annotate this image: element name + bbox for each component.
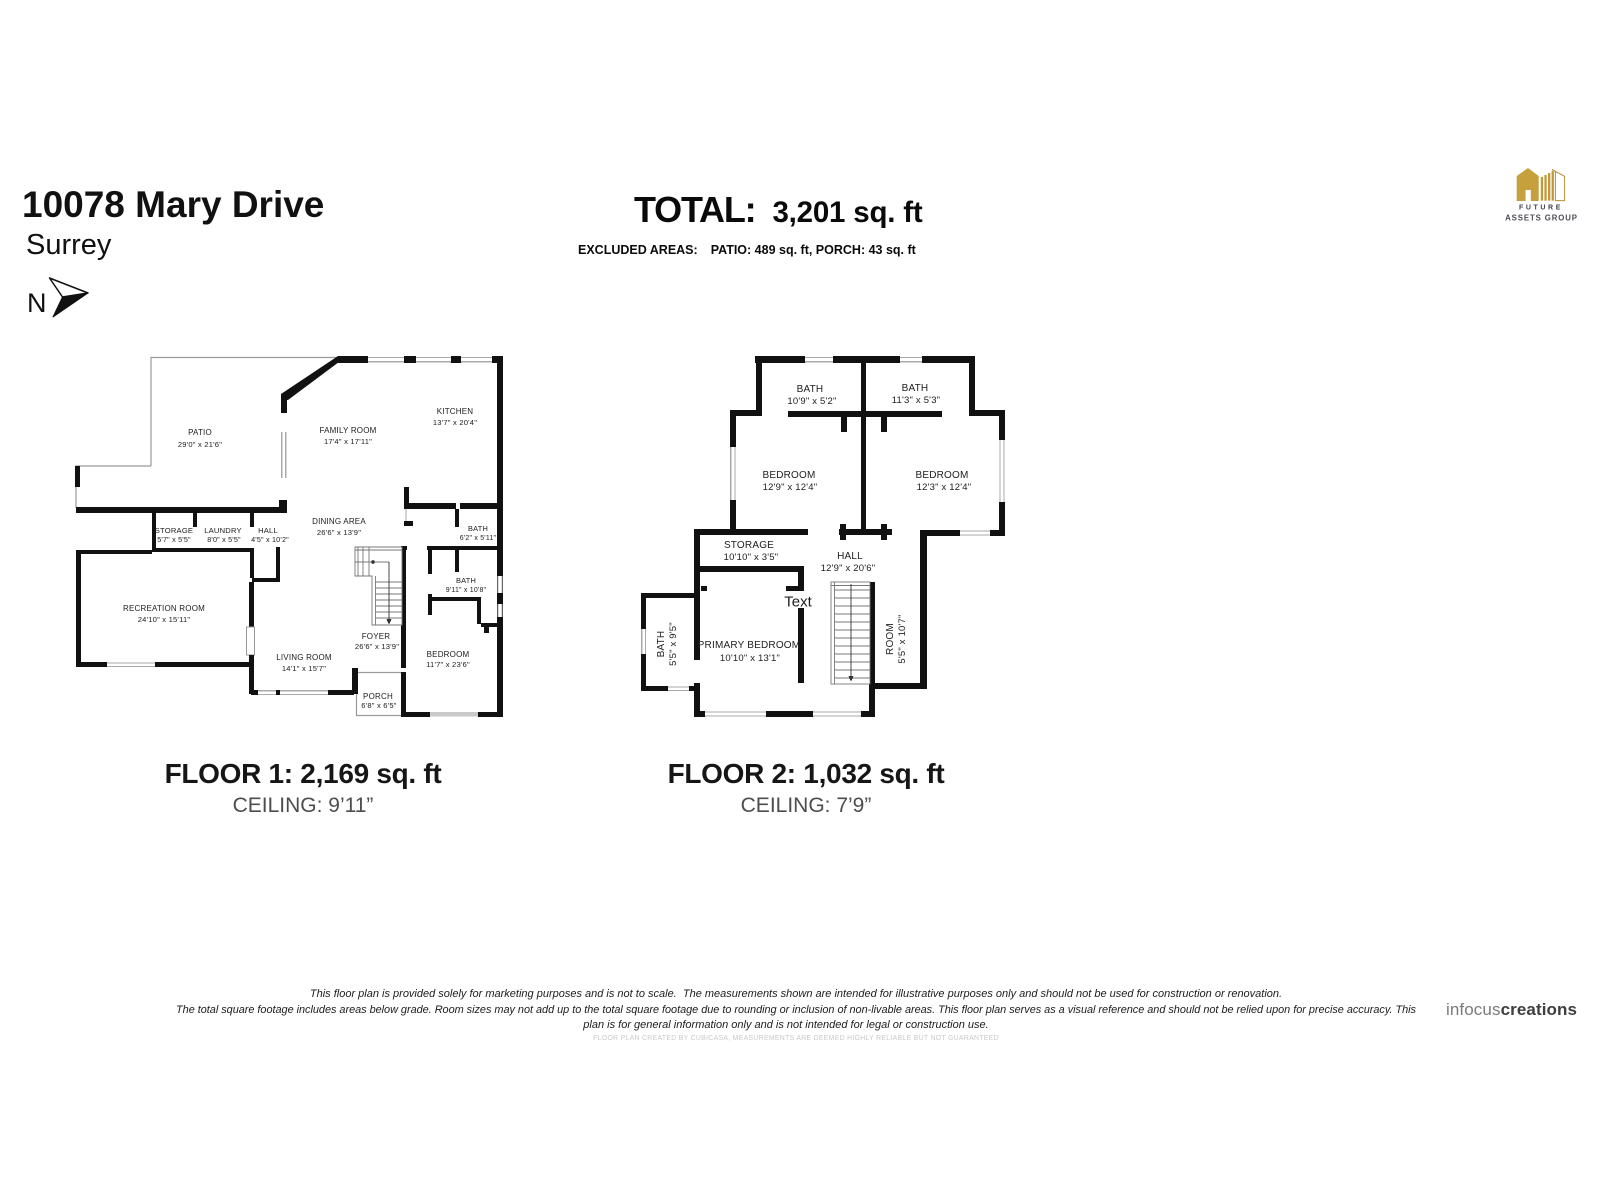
svg-text:FOYER: FOYER: [362, 632, 391, 641]
svg-text:12'9" x 20'6": 12'9" x 20'6": [821, 563, 876, 574]
svg-text:STORAGE: STORAGE: [155, 526, 193, 535]
svg-text:LIVING ROOM: LIVING ROOM: [276, 653, 332, 662]
svg-text:HALL: HALL: [258, 526, 278, 535]
svg-text:PRIMARY BEDROOM: PRIMARY BEDROOM: [698, 640, 801, 651]
svg-text:11'3" x 5'3": 11'3" x 5'3": [892, 395, 941, 406]
svg-text:BEDROOM: BEDROOM: [762, 470, 815, 481]
svg-text:DINING AREA: DINING AREA: [312, 517, 366, 526]
svg-text:26'6" x 13'9": 26'6" x 13'9": [355, 642, 399, 651]
svg-text:13'7" x 20'4": 13'7" x 20'4": [433, 418, 477, 427]
svg-text:Text: Text: [784, 594, 812, 611]
svg-text:PORCH: PORCH: [363, 692, 393, 701]
svg-text:LAUNDRY: LAUNDRY: [204, 526, 242, 535]
svg-text:5'5" x 9'5": 5'5" x 9'5": [668, 622, 679, 666]
svg-text:ASSETS GROUP: ASSETS GROUP: [1505, 214, 1578, 223]
svg-text:12'9" x 12'4": 12'9" x 12'4": [763, 482, 818, 493]
svg-text:FUTURE: FUTURE: [1519, 205, 1563, 212]
svg-text:10'10" x 3'5": 10'10" x 3'5": [724, 552, 779, 563]
svg-text:BATH: BATH: [902, 383, 929, 394]
svg-text:4'5" x 10'2": 4'5" x 10'2": [251, 535, 289, 544]
svg-text:14'1" x 15'7": 14'1" x 15'7": [282, 664, 326, 673]
svg-text:BEDROOM: BEDROOM: [427, 650, 470, 659]
svg-text:RECREATION ROOM: RECREATION ROOM: [123, 604, 205, 613]
svg-text:10'10" x 13'1": 10'10" x 13'1": [720, 653, 780, 664]
svg-text:12'3" x 12'4": 12'3" x 12'4": [917, 482, 972, 493]
svg-text:5'5" x 10'7": 5'5" x 10'7": [897, 614, 908, 663]
svg-text:KITCHEN: KITCHEN: [437, 407, 474, 416]
svg-text:9'11" x 10'8": 9'11" x 10'8": [446, 587, 487, 594]
svg-text:HALL: HALL: [837, 551, 863, 562]
svg-text:17'4" x 17'11": 17'4" x 17'11": [324, 437, 372, 446]
svg-text:BATH: BATH: [656, 631, 667, 658]
svg-text:11'7" x 23'6": 11'7" x 23'6": [426, 660, 470, 669]
svg-text:N: N: [27, 288, 47, 318]
svg-text:PATIO: PATIO: [188, 428, 212, 437]
svg-text:STORAGE: STORAGE: [724, 540, 774, 551]
svg-text:5'7" x 5'5": 5'7" x 5'5": [157, 535, 191, 544]
svg-text:BATH: BATH: [797, 384, 824, 395]
svg-text:6'2" x 5'11": 6'2" x 5'11": [460, 535, 497, 542]
svg-text:BATH: BATH: [456, 576, 476, 585]
svg-text:24'10" x 15'11": 24'10" x 15'11": [138, 615, 191, 624]
svg-text:BATH: BATH: [468, 524, 488, 533]
svg-text:6'8" x 6'5": 6'8" x 6'5": [361, 701, 397, 710]
svg-text:29'0" x 21'6": 29'0" x 21'6": [178, 440, 222, 449]
svg-text:10'9" x 5'2": 10'9" x 5'2": [787, 396, 836, 407]
svg-text:ROOM: ROOM: [885, 623, 896, 655]
svg-text:26'6" x 13'9": 26'6" x 13'9": [317, 528, 361, 537]
svg-text:FAMILY ROOM: FAMILY ROOM: [319, 426, 376, 435]
svg-text:8'0" x 5'5": 8'0" x 5'5": [207, 535, 241, 544]
svg-text:BEDROOM: BEDROOM: [915, 470, 968, 481]
